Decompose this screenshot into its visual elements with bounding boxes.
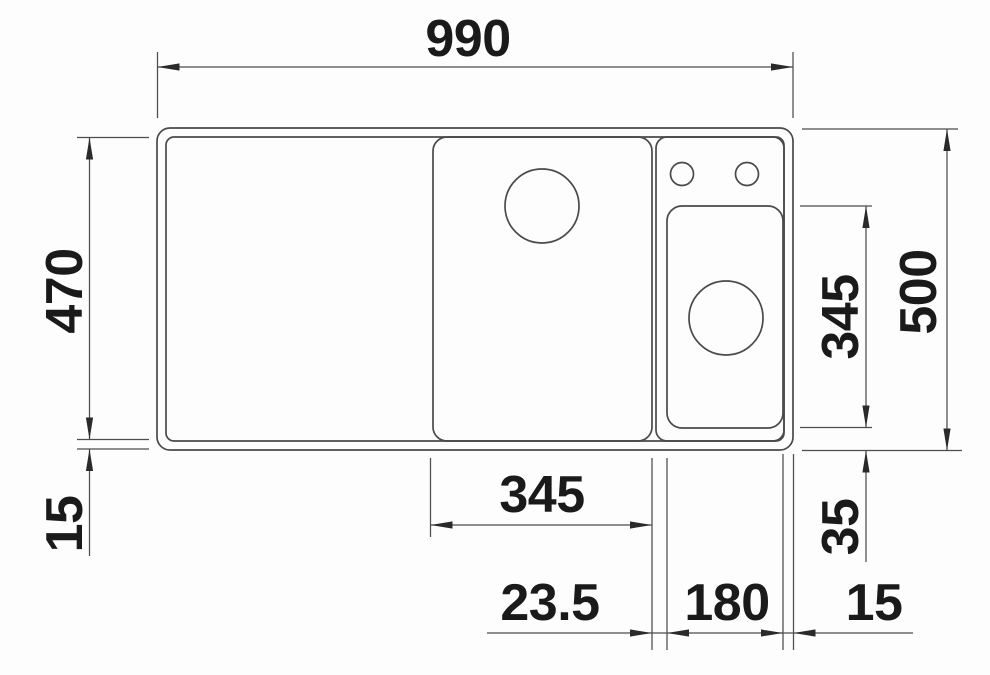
arrowhead-right-to-gap <box>630 629 652 636</box>
tap-hole-right <box>736 163 759 186</box>
dim-accessory-bowl-width: 180 <box>684 574 783 637</box>
dim-overall-width: 990 <box>158 10 794 118</box>
arrowhead-down <box>86 418 93 440</box>
drawing-canvas: 990 470 15 500 <box>0 0 990 675</box>
dim-accessory-bowl-bottom-offset: 35 <box>812 451 870 563</box>
dim-accessory-bowl-width-label: 180 <box>684 574 769 632</box>
dim-overall-width-label: 990 <box>425 10 510 68</box>
dim-bowl-gap-label: 23.5 <box>500 574 599 632</box>
arrowhead-down <box>943 429 950 451</box>
sink-inner-rim <box>166 137 784 441</box>
main-drain-hole <box>505 169 579 243</box>
arrowhead-up <box>862 206 869 228</box>
sink-outer-edge <box>157 128 793 450</box>
arrowhead-up <box>943 129 950 151</box>
sink <box>157 128 793 450</box>
arrowhead-up <box>86 449 93 471</box>
dim-rim-right: 15 <box>794 574 903 637</box>
dim-bowl-gap: 23.5 <box>500 574 689 637</box>
dim-rim-bottom-label: 15 <box>36 496 94 553</box>
dim-rim-bottom: 15 <box>36 449 149 556</box>
dim-main-bowl-width-label: 345 <box>499 466 584 524</box>
dim-inner-depth: 470 <box>36 138 149 440</box>
dim-accessory-bowl-bottom-offset-label: 35 <box>812 499 870 556</box>
tap-hole-left <box>671 163 694 186</box>
dim-rim-right-label: 15 <box>846 574 903 632</box>
dim-inner-depth-label: 470 <box>36 248 94 333</box>
dim-accessory-bowl-depth-label: 345 <box>812 274 870 359</box>
dim-accessory-bowl-depth: 345 <box>800 206 872 428</box>
accessory-drain-hole <box>689 281 763 355</box>
dim-overall-depth-label: 500 <box>890 249 948 334</box>
arrowhead-up <box>86 138 93 160</box>
accessory-bowl <box>667 206 783 428</box>
arrowhead-down <box>862 406 869 428</box>
arrowhead-up <box>862 451 869 473</box>
arrowhead-right <box>771 63 793 70</box>
arrowhead-left <box>158 63 180 70</box>
main-bowl <box>433 137 652 441</box>
arrowhead-left <box>794 629 816 636</box>
arrowhead-right <box>630 521 652 528</box>
arrowhead-left <box>431 521 453 528</box>
